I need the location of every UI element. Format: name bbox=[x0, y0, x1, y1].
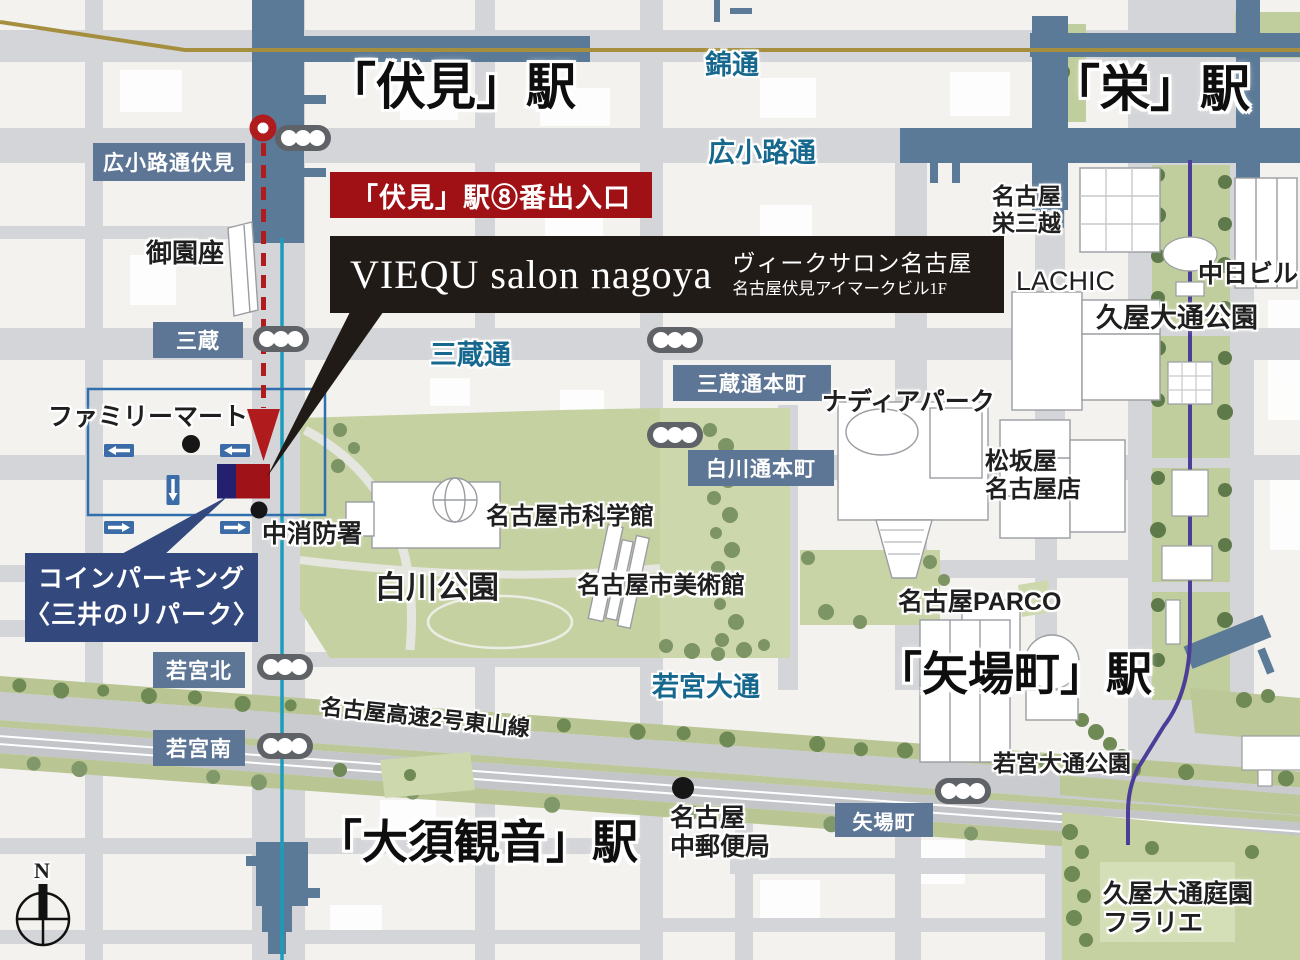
traffic-signal-icon bbox=[257, 654, 313, 680]
wakamiya-street-label: 若宮大通 bbox=[652, 672, 760, 703]
parking-marker bbox=[217, 464, 236, 499]
salon-name-ja: ヴィークサロン名古屋 bbox=[732, 250, 972, 279]
shirakawa-park-label: 白川公園 bbox=[375, 570, 499, 606]
sakae-station-label: 「栄」駅 bbox=[1050, 60, 1250, 118]
matsuzakaya-label: 松坂屋名古屋店 bbox=[985, 448, 1081, 504]
one-way-left-arrow-icon bbox=[220, 444, 250, 457]
chunichi-label: 中日ビル bbox=[1198, 260, 1298, 289]
one-way-left-arrow-icon bbox=[104, 444, 134, 457]
nishiki-street-label: 錦通 bbox=[705, 50, 759, 81]
fushimi-station-label: 「伏見」駅 bbox=[326, 58, 576, 116]
matsuzakaya-line2: 名古屋店 bbox=[985, 476, 1081, 504]
sign-wakamiya-kita: 若宮北 bbox=[153, 652, 245, 688]
misonoza-building bbox=[228, 222, 258, 316]
mitsukoshi-line2: 栄三越 bbox=[992, 210, 1061, 237]
access-map: 「伏見」駅 「栄」駅 「矢場町」駅 「大須観音」駅 錦通 広小路通 三蔵通 若宮… bbox=[0, 0, 1300, 960]
parco-label: 名古屋PARCO bbox=[898, 588, 1061, 617]
sign-shirakawa-honmachi: 白川通本町 bbox=[688, 450, 834, 486]
flarie-label: 久屋大通庭園フラリエ bbox=[1103, 880, 1253, 938]
post-office-dot bbox=[672, 777, 694, 799]
sign-sanzo-honmachi: 三蔵通本町 bbox=[673, 365, 831, 401]
science-museum-label: 名古屋市科学館 bbox=[486, 503, 654, 531]
matsuzakaya-line1: 松坂屋 bbox=[985, 448, 1081, 476]
familymart-label: ファミリーマート bbox=[48, 403, 248, 432]
sign-hirokoji-fushimi: 広小路通伏見 bbox=[93, 143, 245, 181]
post-office-line2: 中郵便局 bbox=[670, 833, 770, 862]
parking-callout-box: コインパーキング 〈三井のリパーク〉 bbox=[25, 553, 258, 642]
compass-north-label: N bbox=[34, 858, 50, 884]
sanzo-street-label: 三蔵通 bbox=[430, 340, 511, 371]
salon-marker bbox=[236, 464, 270, 499]
salon-address: 名古屋伏見アイマークビル1F bbox=[732, 279, 972, 300]
misonoza-label: 御園座 bbox=[146, 238, 224, 268]
flarie-line1: 久屋大通庭園 bbox=[1103, 880, 1253, 909]
traffic-signal-icon bbox=[647, 422, 703, 448]
parking-line2: 〈三井のリパーク〉 bbox=[25, 598, 258, 634]
salon-name-en: VIEQU salon nagoya bbox=[350, 251, 712, 298]
post-office-label: 名古屋中郵便局 bbox=[670, 804, 770, 862]
small-green bbox=[380, 752, 475, 798]
traffic-signal-icon bbox=[647, 327, 703, 353]
art-museum-label: 名古屋市美術館 bbox=[577, 572, 745, 600]
mitsukoshi-building bbox=[1080, 168, 1160, 252]
traffic-signal-icon bbox=[275, 125, 331, 151]
mitsukoshi-label: 名古屋栄三越 bbox=[992, 183, 1061, 236]
hirokoji-street-label: 広小路通 bbox=[708, 138, 816, 169]
traffic-signal-icon bbox=[935, 778, 991, 804]
sign-sanzo: 三蔵 bbox=[153, 322, 243, 358]
one-way-down-arrow-icon bbox=[167, 475, 180, 505]
wakamiya-park-label: 若宮大通公園 bbox=[993, 750, 1131, 777]
yabacho-station-label: 「矢場町」駅 bbox=[876, 648, 1152, 701]
hisaya-park-label: 久屋大通公園 bbox=[1096, 303, 1258, 334]
sign-wakamiya-minami: 若宮南 bbox=[153, 730, 245, 766]
exit-callout-box: 「伏見」駅⑧番出入口 bbox=[330, 172, 652, 218]
parking-line1: コインパーキング bbox=[38, 562, 245, 598]
nadia-park-label: ナディアパーク bbox=[822, 388, 995, 417]
familymart-dot bbox=[182, 435, 200, 453]
sign-yabacho: 矢場町 bbox=[835, 803, 933, 837]
traffic-signal-icon bbox=[253, 326, 309, 352]
traffic-signal-icon bbox=[257, 733, 313, 759]
mitsukoshi-line1: 名古屋 bbox=[992, 183, 1061, 210]
lachic-label: LACHIC bbox=[1016, 266, 1115, 297]
flarie-line2: フラリエ bbox=[1103, 909, 1253, 938]
one-way-right-arrow-icon bbox=[220, 521, 250, 534]
osukannon-station-label: 「大須観音」駅 bbox=[316, 816, 638, 869]
post-office-line1: 名古屋 bbox=[670, 804, 770, 833]
one-way-right-arrow-icon bbox=[104, 521, 134, 534]
fire-station-dot bbox=[251, 502, 268, 519]
salon-callout-box: VIEQU salon nagoya ヴィークサロン名古屋 名古屋伏見アイマーク… bbox=[330, 236, 1004, 313]
fire-station-label: 中消防署 bbox=[262, 520, 362, 549]
